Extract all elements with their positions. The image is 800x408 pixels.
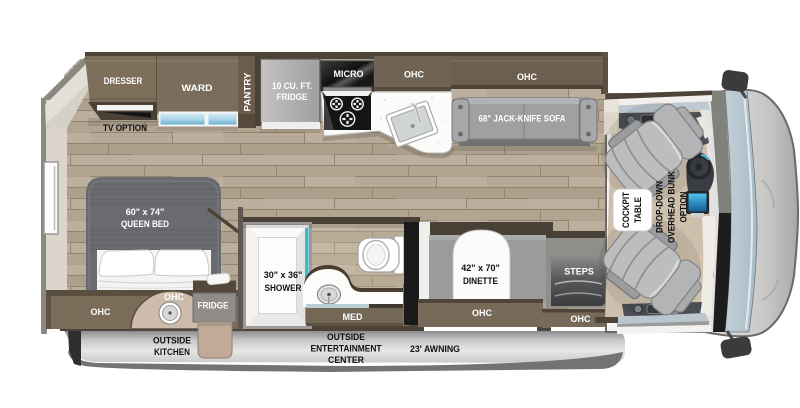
svg-text:FRIDGE: FRIDGE	[198, 301, 229, 311]
svg-text:68" JACK-KNIFE SOFA: 68" JACK-KNIFE SOFA	[479, 114, 566, 124]
svg-text:TV OPTION: TV OPTION	[103, 123, 147, 133]
svg-text:PANTRY: PANTRY	[243, 73, 253, 112]
svg-text:OVERHEAD BUNK: OVERHEAD BUNK	[667, 171, 677, 243]
svg-text:COCKPIT: COCKPIT	[621, 192, 631, 228]
svg-text:OUTSIDE: OUTSIDE	[327, 332, 365, 342]
svg-text:OHC: OHC	[91, 307, 112, 317]
svg-text:DINETTE: DINETTE	[463, 276, 498, 286]
svg-text:QUEEN BED: QUEEN BED	[121, 219, 169, 229]
svg-text:MICRO: MICRO	[334, 69, 364, 79]
svg-text:WARD: WARD	[182, 83, 214, 93]
svg-text:60" x 74": 60" x 74"	[126, 207, 165, 217]
svg-text:DROP-DOWN: DROP-DOWN	[655, 181, 665, 233]
svg-text:30" x 36": 30" x 36"	[264, 270, 303, 280]
svg-text:CENTER: CENTER	[328, 355, 364, 365]
svg-text:OUTSIDE: OUTSIDE	[153, 336, 191, 346]
svg-text:OHC: OHC	[404, 70, 425, 80]
svg-text:42" x 70": 42" x 70"	[461, 263, 500, 273]
svg-text:TABLE: TABLE	[633, 197, 643, 223]
svg-text:MED: MED	[343, 312, 364, 322]
svg-text:OHC: OHC	[472, 308, 493, 318]
svg-text:OPTION: OPTION	[679, 192, 689, 223]
svg-text:DRESSER: DRESSER	[104, 76, 143, 86]
svg-text:ENTERTAINMENT: ENTERTAINMENT	[311, 344, 382, 354]
svg-text:OHC: OHC	[571, 314, 592, 324]
svg-text:KITCHEN: KITCHEN	[154, 347, 190, 357]
svg-text:STEPS: STEPS	[564, 267, 594, 277]
svg-text:FRIDGE: FRIDGE	[277, 92, 308, 102]
svg-text:SHOWER: SHOWER	[265, 283, 302, 293]
svg-text:OHC: OHC	[517, 72, 538, 82]
svg-text:OHC: OHC	[164, 292, 185, 302]
svg-text:23' AWNING: 23' AWNING	[410, 344, 460, 354]
svg-text:10 CU. FT.: 10 CU. FT.	[272, 81, 312, 91]
